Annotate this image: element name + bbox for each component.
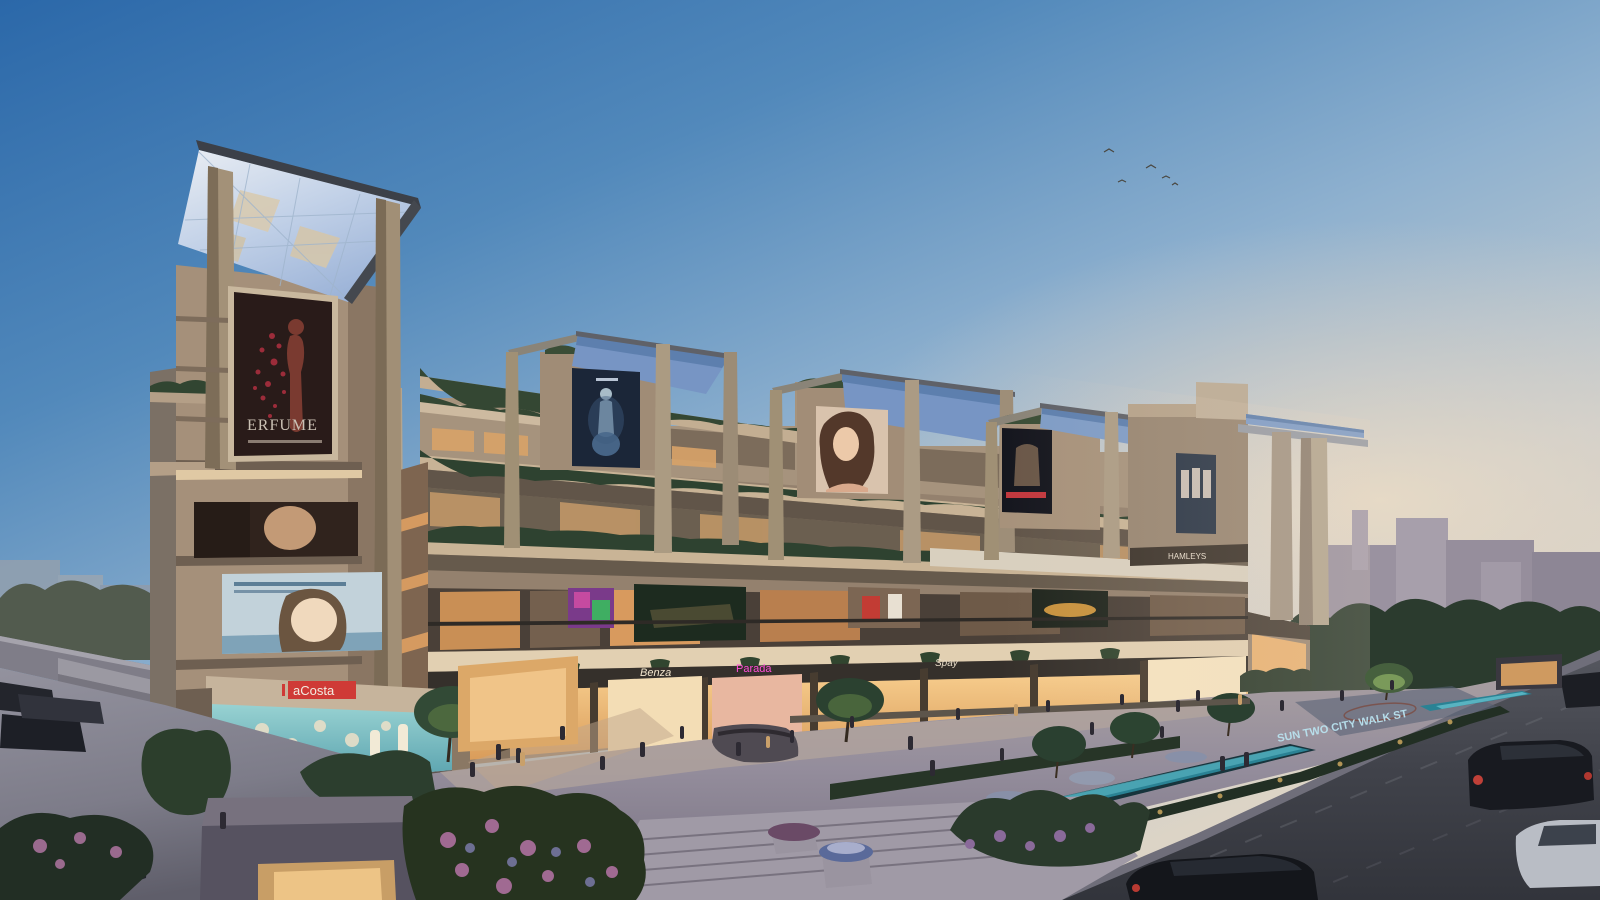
svg-text:Spay: Spay [935, 658, 959, 669]
svg-text:ERFUME: ERFUME [247, 417, 318, 434]
svg-text:aCosta: aCosta [293, 683, 335, 698]
svg-text:Parada: Parada [736, 663, 772, 675]
svg-text:Benza: Benza [640, 667, 671, 679]
